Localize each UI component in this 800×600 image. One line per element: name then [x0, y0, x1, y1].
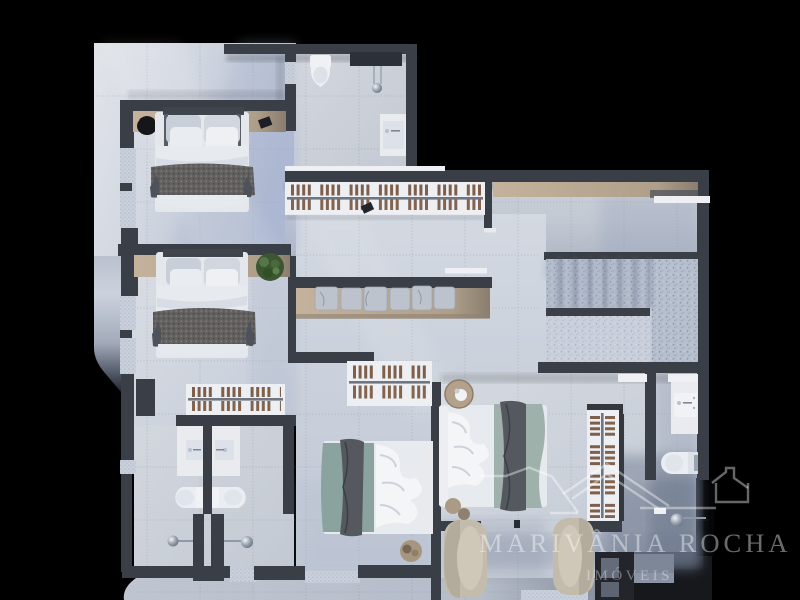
svg-text:IMÓVEIS: IMÓVEIS [586, 567, 673, 584]
svg-text:MARIVÂNIA ROCHA: MARIVÂNIA ROCHA [479, 528, 792, 558]
